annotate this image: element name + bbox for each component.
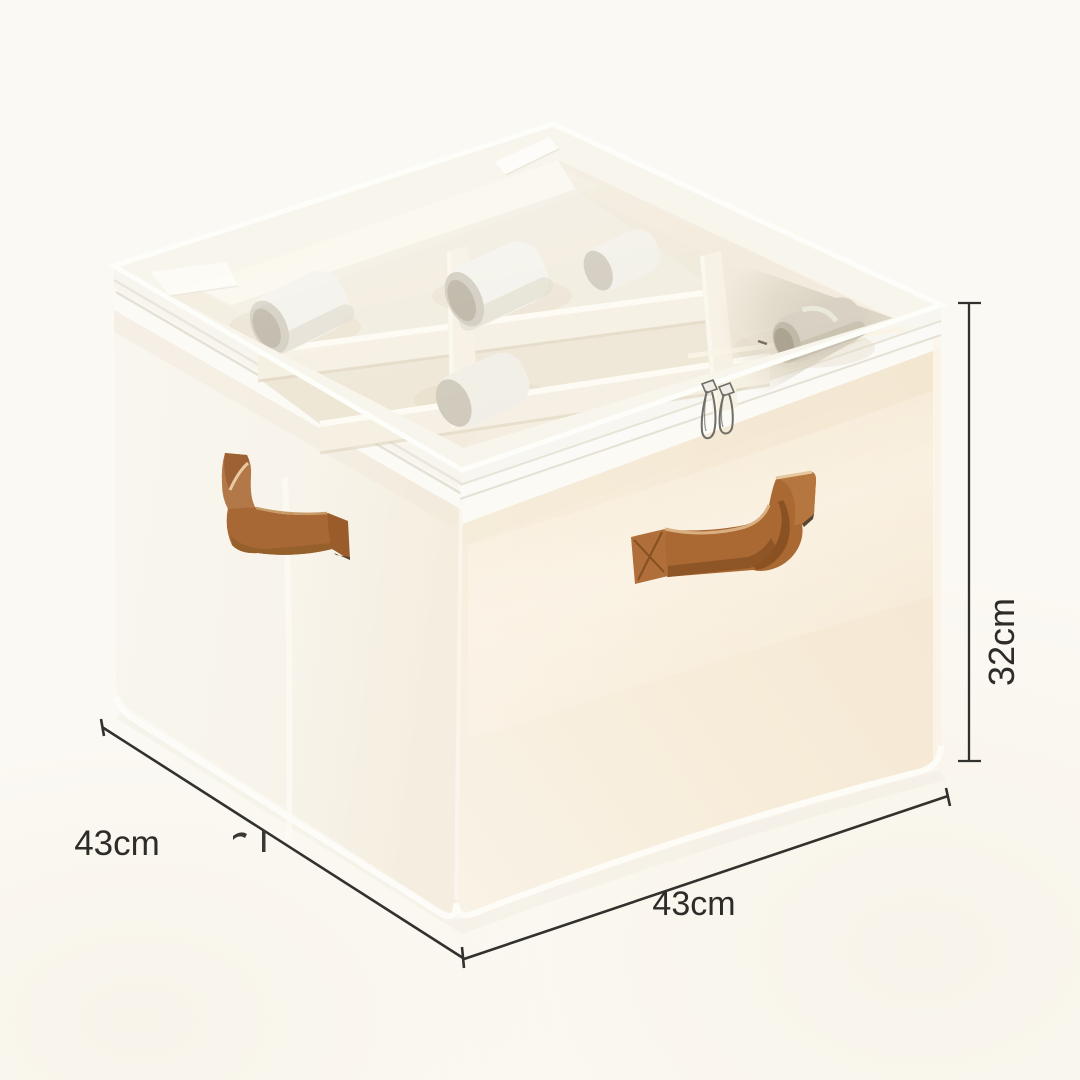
svg-text:43cm: 43cm bbox=[652, 885, 735, 923]
svg-text:32cm: 32cm bbox=[981, 598, 1022, 686]
svg-text:43cm: 43cm bbox=[74, 824, 160, 863]
